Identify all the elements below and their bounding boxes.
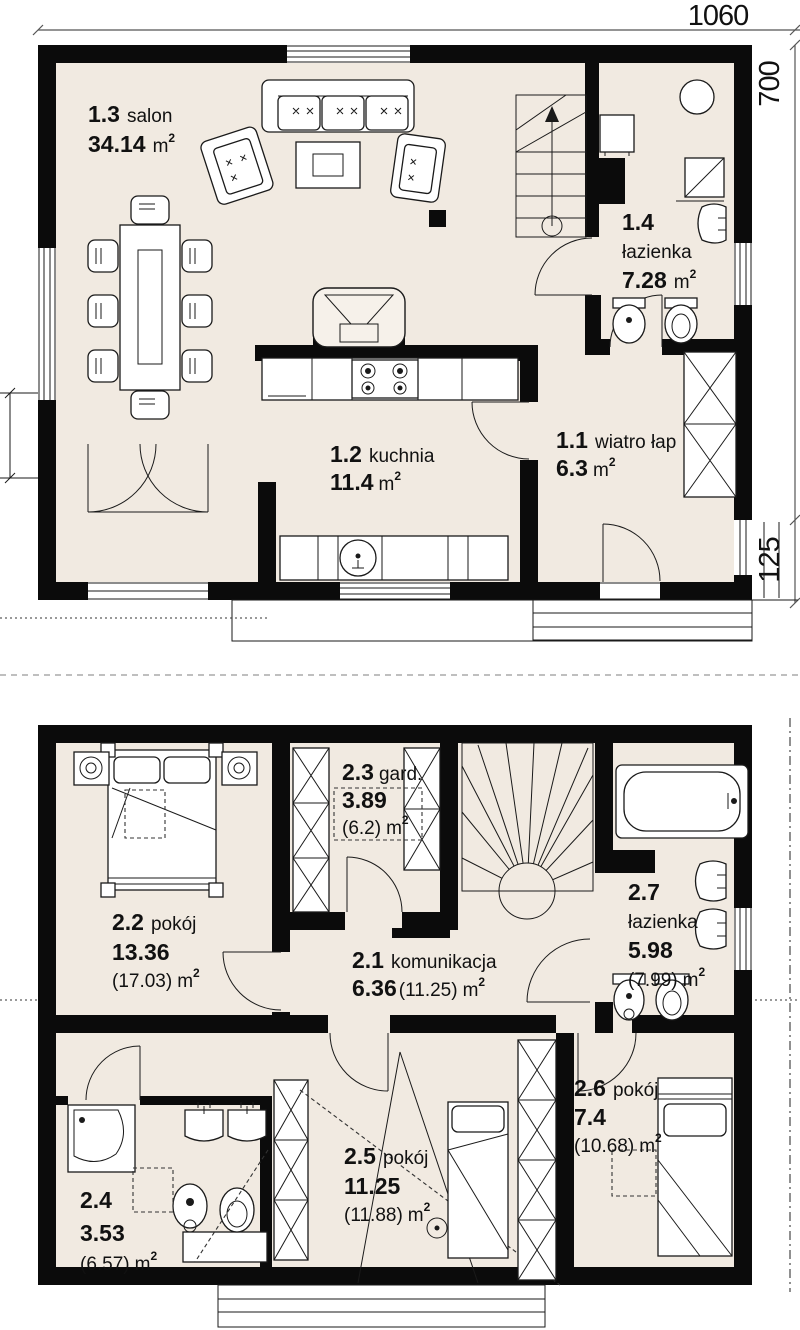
wall-2-4-top-b — [140, 1096, 270, 1105]
wall-washer-nook — [599, 158, 625, 204]
window-kitchen-bottom — [340, 582, 450, 600]
bathtub-2-7 — [616, 765, 748, 838]
window-salon-left — [38, 248, 56, 400]
label-2-6-area: 7.4 — [574, 1104, 606, 1130]
wardrobe-2-5-right — [518, 1040, 556, 1280]
label-2-7: 2.7 — [628, 879, 660, 905]
label-bathroom: 1.4 — [622, 209, 654, 235]
wardrobe-2-5-left — [274, 1080, 308, 1260]
washbasin-2-7-a — [696, 861, 727, 901]
upper-floor-plan: 2.3gard. 3.89 (6.2)m2 2.2pokój 13.36 (17… — [38, 725, 752, 1327]
outer-wall-right-corner — [734, 575, 752, 600]
label-2-3-area: 3.89 — [342, 787, 387, 813]
wall-2-4-top-a — [38, 1096, 68, 1105]
window-salon-top — [287, 45, 410, 63]
sofa — [262, 80, 414, 132]
wall-2-7-lower — [595, 1002, 613, 1033]
coffee-table — [296, 142, 360, 188]
pillar-salon — [429, 210, 446, 227]
wall-2-3-bottom-right — [402, 912, 458, 930]
cooker-hood — [313, 288, 405, 347]
wardrobe-entry — [684, 352, 736, 497]
dim-height-label: 700 — [754, 61, 786, 106]
wall-2-5-2-6 — [556, 1033, 574, 1267]
bidet-2-4 — [220, 1188, 254, 1232]
bidet-1-4 — [665, 298, 697, 343]
wall-bath-hall-left — [585, 339, 610, 355]
wall-2-2-lower — [272, 1012, 290, 1033]
ground-floor-plan: 1.3salon 34.14m2 1.4 łazienka 7.28m2 1.2… — [0, 45, 798, 641]
outer-wall-top-2 — [38, 725, 752, 743]
armchair-right — [390, 133, 446, 203]
label-2-7-name: łazienka — [628, 912, 698, 933]
opening-entrance-door — [600, 582, 660, 600]
wall-hall-bottom-c — [632, 1015, 734, 1033]
stove — [352, 360, 418, 398]
wall-2-2-bottom — [38, 1015, 272, 1033]
floor-plan-page: 1060 700 125 — [0, 0, 800, 1330]
washbasin-1-4 — [698, 204, 726, 243]
bed-2-6 — [658, 1078, 732, 1256]
label-2-4-area: 3.53 — [80, 1220, 125, 1246]
wall-2-3-right — [440, 725, 458, 930]
label-2-4: 2.4 — [80, 1187, 112, 1213]
label-2-7-area: 5.98 — [628, 937, 673, 963]
toilet-1-4 — [613, 298, 645, 343]
corner-bathtub-2-4 — [68, 1105, 135, 1172]
window-bath-upper-right — [734, 908, 752, 970]
washing-machine — [600, 115, 634, 156]
beam-stair — [392, 928, 450, 938]
outer-wall-left-2 — [38, 725, 56, 1285]
wall-2-7-stub — [595, 850, 655, 873]
nightstand-right — [222, 752, 257, 785]
floor-plan-drawing: 1060 700 125 — [0, 0, 800, 1330]
dim-width-label: 1060 — [688, 0, 749, 32]
wall-kitchen-left — [258, 482, 276, 582]
bed-2-2 — [101, 743, 223, 897]
opening-terrace-door — [88, 582, 208, 600]
wall-kitchen-hall-lower — [520, 460, 538, 582]
dining-table — [120, 225, 180, 390]
opening-side-right — [734, 520, 752, 575]
wall-hall-bottom-a — [290, 1015, 328, 1033]
kitchen-counter-bottom — [280, 536, 508, 580]
label-2-5-area: 11.25 — [344, 1173, 400, 1199]
kitchen-sink — [340, 540, 376, 576]
dim-step-label: 125 — [754, 537, 786, 582]
terrace-upper — [218, 1285, 545, 1327]
wall-kitchen-hall-upper — [520, 345, 538, 402]
window-bathroom-right — [734, 243, 752, 305]
nightstand-left — [74, 752, 109, 785]
washbasin-2-7-b — [696, 909, 727, 949]
wall-2-3-bottom-left — [272, 912, 345, 930]
label-2-2-area: 13.36 — [112, 939, 170, 965]
wardrobe-2-3-left — [293, 748, 329, 912]
label-bathroom-name: łazienka — [622, 242, 692, 263]
wall-hall-bottom-b — [390, 1015, 556, 1033]
round-table — [680, 80, 714, 114]
wall-stair-bath — [585, 63, 599, 237]
